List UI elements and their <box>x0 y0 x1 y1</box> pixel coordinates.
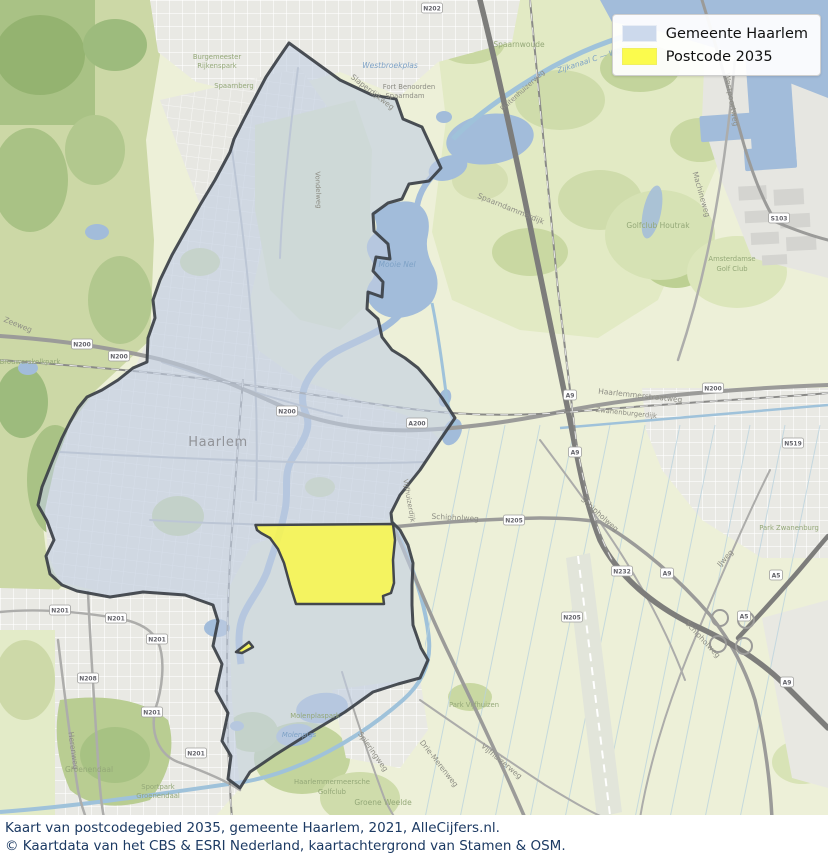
svg-text:N202: N202 <box>423 5 441 12</box>
road-shield: N201 <box>147 634 168 644</box>
map-label: Sportpark <box>141 783 175 791</box>
svg-text:N205: N205 <box>563 614 581 621</box>
legend-row-gemeente: Gemeente Haarlem <box>622 22 808 45</box>
svg-text:N200: N200 <box>704 385 722 392</box>
map-label: Spaarnberg <box>214 82 253 90</box>
map-label: Westbroekplas <box>362 61 418 70</box>
road-shield: A5 <box>738 611 751 621</box>
svg-text:N201: N201 <box>187 750 205 757</box>
map-label: Mooie Nel <box>378 260 416 269</box>
road-shield: N208 <box>78 673 99 683</box>
road-shield: A9 <box>569 447 582 457</box>
svg-text:N201: N201 <box>148 636 166 643</box>
map-label: Golfclub Houtrak <box>626 221 690 230</box>
road-shield: A5 <box>770 570 783 580</box>
road-shield: N205 <box>504 515 525 525</box>
map-label: Golfclub <box>318 788 346 796</box>
map-label: Groenendaal <box>136 792 180 800</box>
svg-text:N201: N201 <box>107 615 125 622</box>
svg-text:A9: A9 <box>571 449 580 456</box>
map-canvas: Haarlem Spaarnwoude Westbroekplas Fort B… <box>0 0 828 818</box>
map-label: Spaarnwoude <box>493 40 545 49</box>
legend-row-postcode: Postcode 2035 <box>622 45 808 68</box>
map-label: Park Zwanenburg <box>759 524 819 532</box>
legend-swatch-postcode-2035 <box>622 48 657 65</box>
svg-text:N208: N208 <box>79 675 97 682</box>
map-label: Spaarndam <box>385 92 424 100</box>
road-shield: N200 <box>109 351 130 361</box>
svg-text:N232: N232 <box>613 568 631 575</box>
map-label: Golf Club <box>716 265 747 273</box>
map-label: Haarlem <box>188 435 248 450</box>
map-label: Rijkenspark <box>197 62 236 70</box>
svg-text:N200: N200 <box>110 353 128 360</box>
road-shield: N201 <box>106 613 127 623</box>
map-legend: Gemeente Haarlem Postcode 2035 <box>612 14 821 76</box>
map-label: Park Vijfhuizen <box>449 701 499 709</box>
road-shield: N200 <box>277 406 298 416</box>
svg-text:A200: A200 <box>408 420 425 427</box>
road-shield: A9 <box>564 390 577 400</box>
svg-text:N200: N200 <box>278 408 296 415</box>
map-label: Amsterdamse <box>708 255 755 263</box>
svg-text:A5: A5 <box>740 613 749 620</box>
road-shield: N201 <box>142 707 163 717</box>
svg-text:S103: S103 <box>771 215 788 222</box>
svg-text:N201: N201 <box>51 607 69 614</box>
road-shield: N232 <box>612 566 633 576</box>
road-shield: N200 <box>72 339 93 349</box>
map-label: Vondelweg <box>313 171 322 208</box>
road-shield: N201 <box>50 605 71 615</box>
svg-text:A9: A9 <box>566 392 575 399</box>
svg-text:N201: N201 <box>143 709 161 716</box>
map-label: Fort Benoorden <box>383 83 435 91</box>
postcode-map-image: Haarlem Spaarnwoude Westbroekplas Fort B… <box>0 0 828 861</box>
map-label: Molenplaspark <box>290 712 340 720</box>
svg-text:A9: A9 <box>663 570 672 577</box>
map-label: Haarlemmermeersche <box>294 778 370 786</box>
map-caption: Kaart van postcodegebied 2035, gemeente … <box>0 815 828 861</box>
road-shield: N201 <box>186 748 207 758</box>
svg-text:N519: N519 <box>784 440 802 447</box>
svg-text:N205: N205 <box>505 517 523 524</box>
road-shield: N202 <box>422 3 443 13</box>
legend-label-postcode-2035: Postcode 2035 <box>666 49 773 65</box>
svg-text:A9: A9 <box>783 679 792 686</box>
road-shield: N205 <box>562 612 583 622</box>
svg-text:N200: N200 <box>73 341 91 348</box>
svg-text:A5: A5 <box>772 572 781 579</box>
map-label: Burgemeester <box>193 53 242 61</box>
caption-attribution: © Kaartdata van het CBS & ESRI Nederland… <box>5 837 828 855</box>
road-shield: S103 <box>769 213 790 223</box>
legend-label-gemeente-haarlem: Gemeente Haarlem <box>666 26 808 42</box>
road-shield: N200 <box>703 383 724 393</box>
road-shield: A9 <box>661 568 674 578</box>
map-label: Groene Weelde <box>354 798 412 807</box>
road-shield: A200 <box>407 418 428 428</box>
road-shield: N519 <box>783 438 804 448</box>
legend-swatch-gemeente-haarlem <box>622 25 657 42</box>
road-shield: A9 <box>781 677 794 687</box>
map-label: Brouwerskolkpark <box>0 358 60 366</box>
caption-title: Kaart van postcodegebied 2035, gemeente … <box>5 819 828 837</box>
map-label: Molenplas <box>282 731 317 739</box>
